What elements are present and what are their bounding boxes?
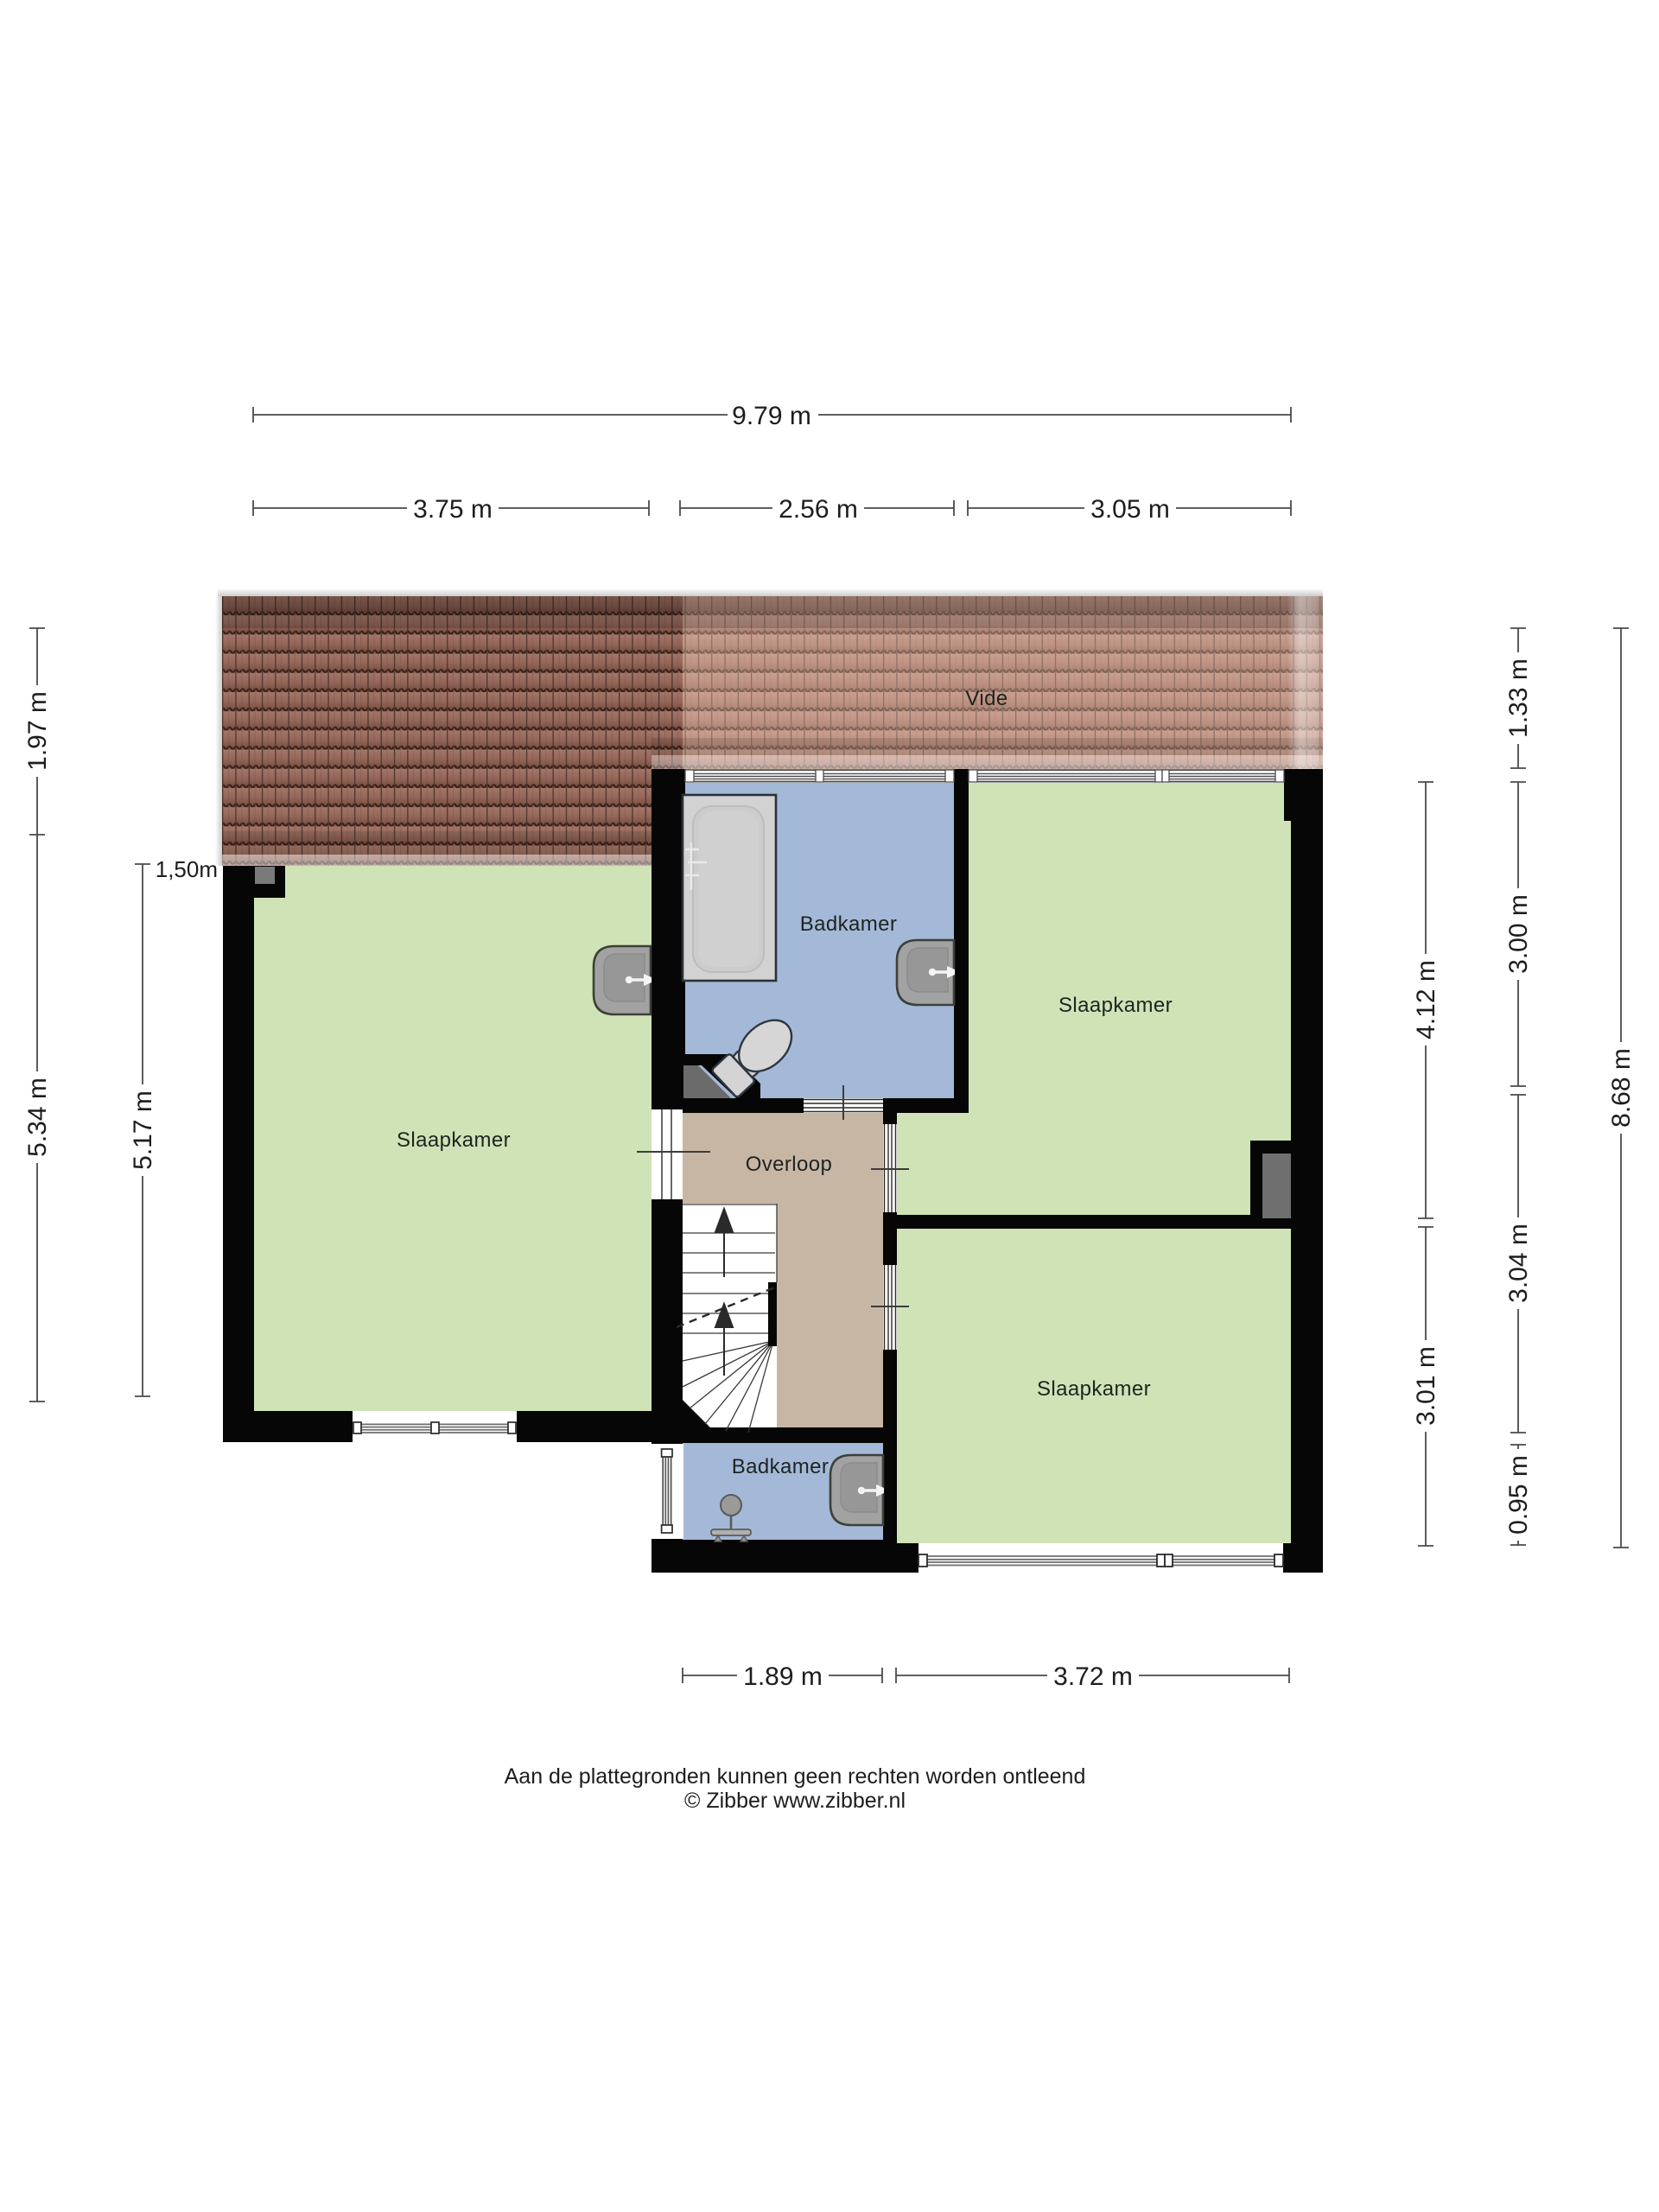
- svg-text:1.33 m: 1.33 m: [1504, 658, 1533, 738]
- svg-text:Vide: Vide: [965, 687, 1007, 710]
- svg-text:8.68 m: 8.68 m: [1607, 1048, 1636, 1128]
- svg-text:2.56 m: 2.56 m: [779, 495, 858, 524]
- svg-text:© Zibber www.zibber.nl: © Zibber www.zibber.nl: [684, 1789, 906, 1813]
- svg-text:4.12 m: 4.12 m: [1412, 960, 1440, 1039]
- svg-text:3.72 m: 3.72 m: [1053, 1662, 1133, 1691]
- svg-text:Badkamer: Badkamer: [800, 912, 898, 936]
- svg-text:Aan de plattegronden kunnen ge: Aan de plattegronden kunnen geen rechten…: [505, 1764, 1086, 1789]
- svg-text:3.05 m: 3.05 m: [1090, 495, 1170, 524]
- svg-text:Badkamer: Badkamer: [732, 1455, 829, 1478]
- svg-text:Slaapkamer: Slaapkamer: [397, 1128, 511, 1152]
- svg-text:5.34 m: 5.34 m: [23, 1077, 52, 1157]
- svg-text:3.00 m: 3.00 m: [1504, 894, 1533, 974]
- svg-text:3.04 m: 3.04 m: [1504, 1224, 1533, 1303]
- svg-text:3.75 m: 3.75 m: [413, 495, 493, 524]
- svg-text:0.95 m: 0.95 m: [1504, 1455, 1533, 1535]
- svg-text:1,50m: 1,50m: [156, 856, 218, 882]
- svg-text:Slaapkamer: Slaapkamer: [1058, 994, 1173, 1017]
- svg-text:1.89 m: 1.89 m: [743, 1662, 823, 1691]
- svg-text:5.17 m: 5.17 m: [129, 1090, 157, 1170]
- svg-text:3.01 m: 3.01 m: [1412, 1346, 1440, 1426]
- svg-text:1.97 m: 1.97 m: [23, 691, 52, 771]
- svg-text:9.79 m: 9.79 m: [732, 402, 811, 430]
- svg-text:Overloop: Overloop: [746, 1153, 833, 1176]
- svg-text:Slaapkamer: Slaapkamer: [1037, 1377, 1151, 1401]
